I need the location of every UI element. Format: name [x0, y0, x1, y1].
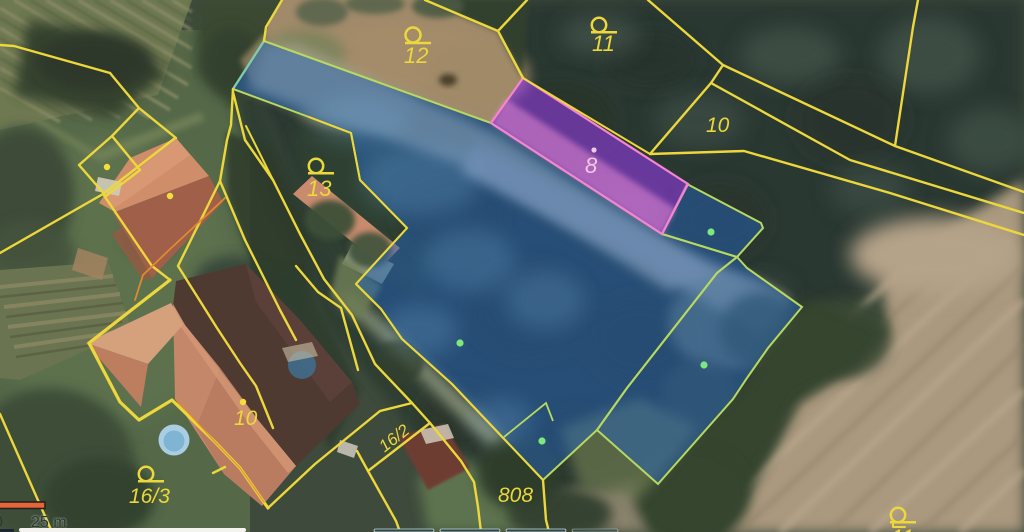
svg-text:10: 10 [234, 407, 258, 430]
svg-text:13: 13 [307, 176, 332, 201]
svg-text:808: 808 [498, 484, 533, 507]
svg-text:11: 11 [891, 525, 914, 532]
svg-text:16/3: 16/3 [129, 485, 170, 508]
svg-text:10: 10 [706, 114, 730, 137]
svg-text:0: 0 [0, 514, 3, 531]
svg-text:8: 8 [585, 153, 598, 178]
svg-text:11: 11 [592, 31, 615, 56]
svg-text:12: 12 [404, 43, 428, 68]
